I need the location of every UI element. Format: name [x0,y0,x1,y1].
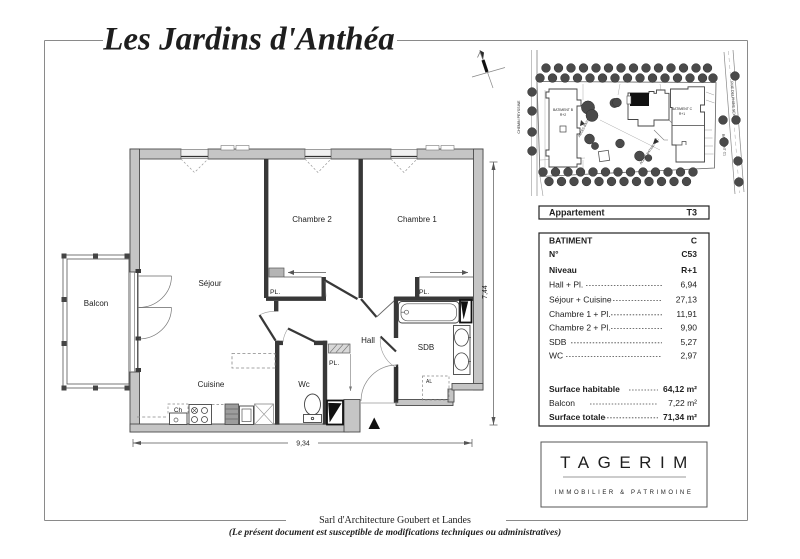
svg-text:7,22 m²: 7,22 m² [668,398,697,408]
svg-text:Balcon: Balcon [549,398,575,408]
svg-text:Appartement: Appartement [549,208,605,218]
svg-text:T3: T3 [686,208,697,218]
svg-text:BATIMENT C: BATIMENT C [672,107,693,111]
svg-text:Chambre 2: Chambre 2 [292,215,332,224]
svg-text:Chambre 2 + Pl.: Chambre 2 + Pl. [549,323,611,333]
svg-text:9,34: 9,34 [296,441,310,448]
svg-text:9,90: 9,90 [680,323,697,333]
svg-text:CHEMIN PEYSSINE: CHEMIN PEYSSINE [517,100,521,134]
svg-text:Séjour: Séjour [198,279,221,288]
svg-text:PL.: PL. [329,360,339,367]
svg-text:BATIMENT B: BATIMENT B [553,108,574,112]
svg-text:Hall + Pl.: Hall + Pl. [549,279,583,289]
svg-text:Chambre 1: Chambre 1 [397,215,437,224]
svg-text:7,44: 7,44 [482,285,489,299]
svg-text:R+2: R+2 [560,113,566,117]
svg-text:71,34 m²: 71,34 m² [663,412,697,422]
svg-text:Wc: Wc [298,380,310,389]
svg-text:27,13: 27,13 [676,295,698,305]
svg-text:PL.: PL. [419,289,429,296]
svg-text:Balcon: Balcon [84,299,108,308]
svg-text:Surface habitable: Surface habitable [549,384,620,394]
svg-text:Sarl d'Architecture Goubert et: Sarl d'Architecture Goubert et Landes [319,515,471,526]
svg-text:TAGERIM: TAGERIM [560,453,696,472]
svg-text:Séjour + Cuisine: Séjour + Cuisine [549,295,612,305]
svg-text:IMMOBILIER & PATRIMOINE: IMMOBILIER & PATRIMOINE [555,490,694,496]
svg-text:BATIMENT: BATIMENT [549,236,593,246]
svg-text:64,12 m²: 64,12 m² [663,384,697,394]
svg-text:5,27: 5,27 [680,337,697,347]
svg-text:Les Jardins d'Anthéa: Les Jardins d'Anthéa [102,22,395,58]
svg-text:N°: N° [549,249,559,259]
svg-text:Cuisine: Cuisine [198,380,225,389]
svg-text:Chambre 1 + Pl.: Chambre 1 + Pl. [549,309,611,319]
svg-text:AL: AL [426,379,432,385]
svg-text:PL.: PL. [270,289,280,296]
svg-text:SDB: SDB [418,343,434,352]
svg-text:R+1: R+1 [679,112,685,116]
svg-text:6,94: 6,94 [680,279,697,289]
svg-text:Niveau: Niveau [549,265,577,275]
svg-text:R+1: R+1 [681,265,697,275]
svg-text:SDB: SDB [549,337,567,347]
svg-text:Hall: Hall [361,336,375,345]
svg-text:Surface totale: Surface totale [549,412,605,422]
svg-text:2,97: 2,97 [680,351,697,361]
svg-text:C53: C53 [681,249,697,259]
svg-text:C: C [691,236,697,246]
svg-text:(Le présent document est susce: (Le présent document est susceptible de … [229,527,561,538]
svg-text:11,91: 11,91 [676,309,697,319]
svg-text:WC: WC [549,351,563,361]
